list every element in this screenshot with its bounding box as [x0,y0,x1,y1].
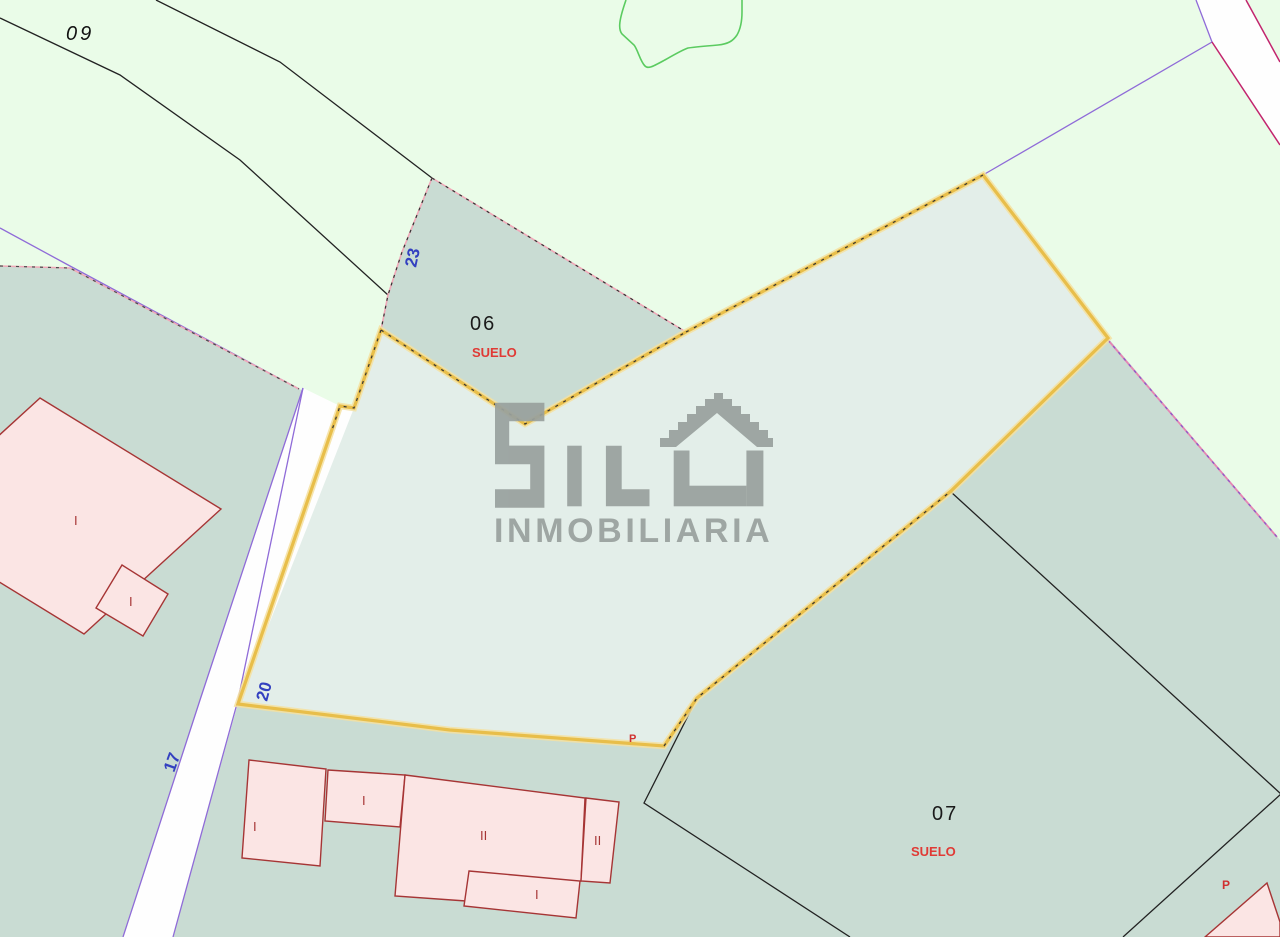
svg-text:23: 23 [401,246,424,268]
svg-text:P: P [1222,878,1230,892]
svg-text:07: 07 [932,803,958,825]
svg-text:INMOBILIARIA: INMOBILIARIA [494,512,773,550]
svg-text:P: P [629,733,636,745]
svg-text:II: II [480,828,487,843]
svg-text:II: II [594,833,601,848]
svg-text:SUELO: SUELO [472,345,517,360]
svg-text:SUELO: SUELO [911,844,956,859]
svg-text:I: I [362,793,366,808]
svg-text:I: I [535,887,539,902]
svg-text:I: I [129,594,133,609]
svg-text:09: 09 [66,23,94,45]
svg-text:06: 06 [470,313,496,335]
svg-text:I: I [74,513,78,528]
svg-text:I: I [253,819,257,834]
